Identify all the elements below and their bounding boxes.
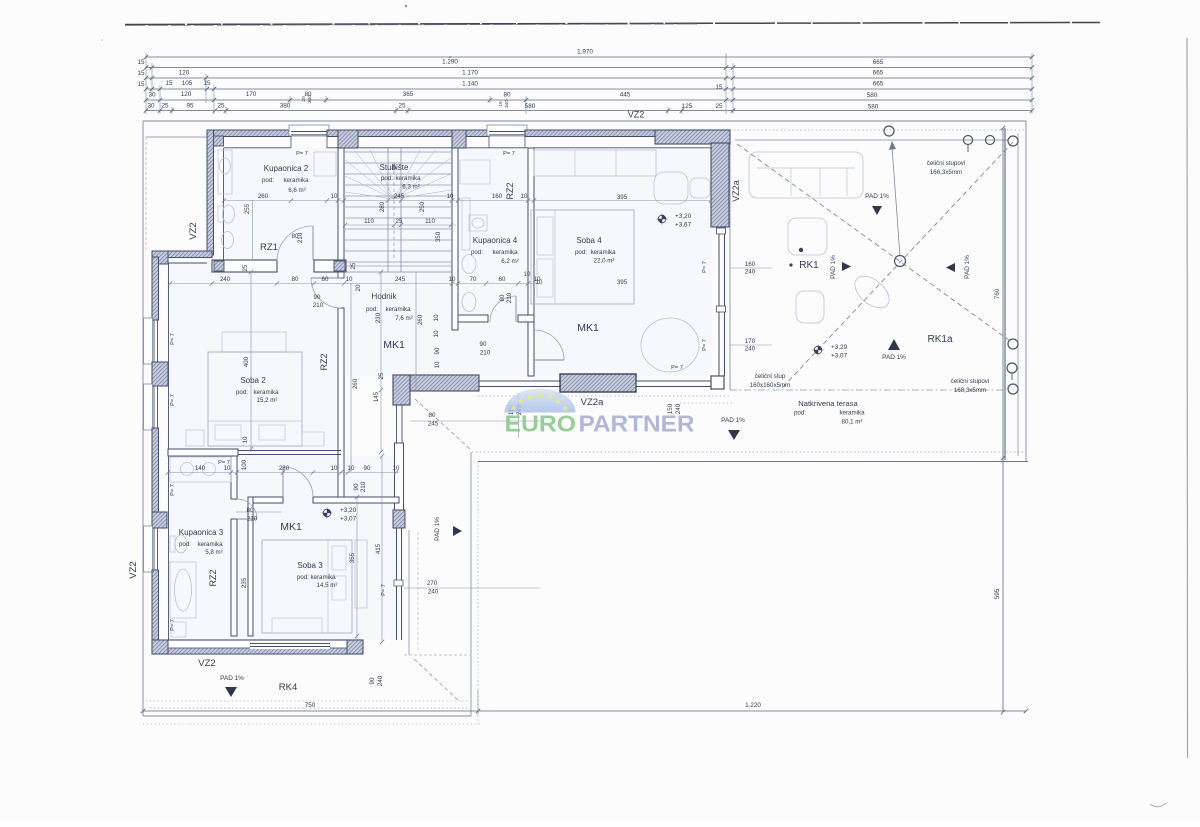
svg-text:60: 60 [322, 276, 329, 283]
svg-text:15: 15 [137, 59, 145, 66]
svg-text:Soba 2: Soba 2 [240, 376, 266, 385]
svg-text:pod:: pod: [794, 410, 806, 417]
svg-text:6,6 m²: 6,6 m² [288, 187, 306, 194]
svg-text:keramika: keramika [283, 177, 309, 184]
svg-text:105: 105 [182, 80, 193, 87]
svg-text:250: 250 [419, 201, 426, 212]
svg-text:100: 100 [241, 459, 248, 470]
svg-text:RZ2: RZ2 [505, 182, 515, 199]
svg-text:20: 20 [355, 284, 362, 291]
svg-text:Hodnik: Hodnik [372, 292, 398, 301]
svg-text:166,3x5mm: 166,3x5mm [930, 169, 962, 176]
svg-text:RK1a: RK1a [927, 334, 952, 345]
svg-text:6,2 m²: 6,2 m² [501, 258, 519, 265]
svg-text:90: 90 [364, 465, 371, 472]
svg-text:125: 125 [682, 103, 693, 110]
svg-text:+3,07: +3,07 [831, 353, 848, 360]
svg-text:10: 10 [348, 465, 355, 472]
svg-text:80: 80 [499, 294, 506, 301]
svg-text:95: 95 [186, 103, 194, 110]
svg-text:230: 230 [279, 465, 290, 472]
svg-text:pod:: pod: [236, 389, 248, 396]
svg-text:240: 240 [428, 589, 439, 596]
svg-text:25: 25 [378, 372, 385, 379]
svg-text:čelični stupovi: čelični stupovi [951, 378, 990, 385]
svg-text:140: 140 [195, 465, 206, 472]
svg-text:80: 80 [503, 92, 511, 99]
svg-text:25: 25 [398, 103, 406, 110]
svg-text:čelični stupovi: čelični stupovi [927, 160, 966, 167]
svg-text:Kupaonica 3: Kupaonica 3 [179, 528, 224, 537]
svg-text:665: 665 [873, 59, 884, 66]
svg-text:25: 25 [217, 103, 225, 110]
svg-text:355: 355 [349, 552, 356, 563]
svg-text:VZ2: VZ2 [198, 658, 215, 669]
svg-text:365: 365 [403, 91, 414, 98]
svg-text:+3,20: +3,20 [340, 507, 357, 514]
svg-text:110: 110 [364, 218, 374, 225]
svg-text:pod:: pod: [381, 175, 393, 182]
svg-text:keramika: keramika [253, 389, 279, 396]
svg-text:VZ2a: VZ2a [581, 397, 604, 408]
svg-text:90: 90 [434, 347, 441, 354]
svg-text:22,0 m²: 22,0 m² [594, 258, 615, 265]
svg-text:30: 30 [147, 103, 155, 110]
svg-text:10: 10 [536, 279, 543, 286]
svg-text:P= 7: P= 7 [702, 261, 708, 273]
svg-text:pod:: pod: [366, 306, 378, 313]
svg-text:235: 235 [241, 577, 248, 588]
svg-text:245: 245 [428, 421, 439, 428]
svg-text:25: 25 [396, 218, 403, 225]
svg-text:160: 160 [745, 261, 756, 268]
svg-text:80: 80 [247, 507, 254, 514]
svg-text:120: 120 [179, 70, 190, 77]
svg-text:pod:: pod: [297, 574, 309, 581]
svg-text:10: 10 [331, 193, 338, 200]
svg-text:15: 15 [137, 81, 145, 88]
svg-text:10: 10 [331, 465, 338, 472]
svg-text:PARTNER: PARTNER [579, 411, 695, 437]
svg-text:PAD 1%: PAD 1% [882, 354, 906, 361]
svg-text:P= 7: P= 7 [503, 151, 515, 157]
svg-text:P= 7: P= 7 [170, 619, 176, 631]
svg-text:280: 280 [379, 201, 386, 212]
svg-text:PAD 1%: PAD 1% [721, 417, 745, 424]
svg-text:+3,20: +3,20 [675, 213, 692, 220]
svg-text:90: 90 [353, 483, 360, 490]
svg-text:VZ2a: VZ2a [731, 180, 741, 202]
svg-text:P= 7: P= 7 [218, 460, 230, 466]
svg-text:160x160x5mm: 160x160x5mm [750, 382, 791, 389]
svg-text:P= 7: P= 7 [381, 584, 387, 596]
svg-text:Kupaonica 4: Kupaonica 4 [473, 236, 518, 245]
svg-text:70: 70 [470, 276, 477, 283]
svg-text:MK1: MK1 [577, 322, 599, 334]
svg-text:415: 415 [375, 543, 382, 554]
svg-text:665: 665 [873, 81, 884, 88]
svg-text:Kupaonica 2: Kupaonica 2 [264, 164, 309, 173]
svg-text:10: 10 [242, 436, 249, 443]
svg-text:VZ2: VZ2 [128, 561, 139, 578]
svg-text:RK1: RK1 [799, 260, 819, 271]
svg-text:7,6 m²: 7,6 m² [395, 315, 413, 322]
svg-text:PAD 1%: PAD 1% [964, 255, 971, 279]
svg-text:260: 260 [352, 378, 359, 389]
svg-text:keramika: keramika [590, 249, 616, 256]
svg-text:keramika: keramika [492, 249, 518, 256]
svg-text:RZ1: RZ1 [260, 242, 278, 253]
svg-text:240: 240 [745, 346, 756, 353]
svg-text:5,8 m²: 5,8 m² [205, 549, 223, 556]
svg-text:240: 240 [220, 276, 231, 283]
svg-text:P= 7: P= 7 [170, 394, 176, 406]
svg-text:145: 145 [373, 391, 380, 402]
svg-text:760: 760 [994, 288, 1001, 299]
svg-text:keramika: keramika [839, 410, 865, 417]
svg-text:Stubište: Stubište [380, 163, 409, 172]
svg-text:15: 15 [715, 84, 723, 91]
svg-text:15: 15 [203, 80, 211, 87]
svg-text:15: 15 [498, 101, 504, 107]
svg-text:P= 7: P= 7 [170, 484, 176, 496]
svg-text:pod:: pod: [262, 177, 274, 184]
svg-text:380: 380 [280, 103, 291, 110]
svg-text:170: 170 [745, 338, 756, 345]
svg-text:RK4: RK4 [279, 682, 297, 693]
svg-text:255: 255 [244, 203, 251, 214]
svg-text:580: 580 [867, 92, 878, 99]
svg-text:170: 170 [246, 91, 257, 98]
svg-text:210: 210 [360, 481, 367, 492]
svg-text:395: 395 [617, 279, 628, 286]
svg-text:1.170: 1.170 [462, 70, 478, 77]
svg-text:445: 445 [620, 92, 631, 99]
svg-text:EURO: EURO [505, 411, 577, 437]
svg-text:15: 15 [165, 80, 173, 87]
svg-text:RZ2: RZ2 [319, 353, 329, 370]
svg-text:580: 580 [868, 104, 879, 111]
svg-text:665: 665 [873, 70, 884, 77]
svg-text:30: 30 [148, 92, 156, 99]
svg-text:PAD 1%: PAD 1% [220, 675, 244, 682]
svg-text:25: 25 [242, 264, 249, 271]
svg-text:10: 10 [433, 314, 440, 321]
svg-text:1.140: 1.140 [462, 81, 478, 88]
svg-text:PAD 1%: PAD 1% [434, 517, 441, 541]
svg-text:395: 395 [617, 194, 628, 201]
svg-text:20: 20 [301, 96, 307, 102]
svg-text:10: 10 [224, 465, 231, 472]
svg-text:pod:: pod: [471, 249, 483, 256]
svg-text:240: 240 [377, 675, 384, 686]
svg-text:25: 25 [350, 262, 357, 269]
svg-text:60: 60 [499, 276, 506, 283]
svg-text:350: 350 [435, 231, 442, 242]
svg-text:keramika: keramika [395, 175, 421, 182]
svg-text:110: 110 [425, 218, 435, 225]
svg-text:P= 7: P= 7 [170, 333, 176, 345]
svg-text:595: 595 [994, 588, 1001, 599]
svg-text:580: 580 [525, 103, 536, 110]
svg-text:240: 240 [745, 269, 756, 276]
svg-text:10: 10 [447, 193, 454, 200]
svg-text:90: 90 [369, 677, 376, 684]
svg-text:1.970: 1.970 [577, 49, 593, 56]
svg-text:80,1 m²: 80,1 m² [842, 419, 863, 426]
svg-text:260: 260 [417, 314, 424, 325]
svg-text:keramika: keramika [310, 574, 336, 581]
svg-text:168,3x5mm: 168,3x5mm [954, 387, 986, 394]
svg-text:210: 210 [297, 232, 304, 243]
svg-text:VZ2: VZ2 [188, 222, 199, 239]
svg-text:10: 10 [393, 465, 400, 472]
svg-text:keramika: keramika [385, 306, 411, 313]
svg-text:P= 7: P= 7 [702, 339, 708, 351]
svg-text:15,2 m²: 15,2 m² [257, 397, 278, 404]
svg-text:MK1: MK1 [280, 521, 302, 533]
svg-text:340: 340 [307, 95, 313, 103]
svg-text:+3,29: +3,29 [831, 344, 848, 351]
svg-text:210: 210 [506, 292, 513, 303]
svg-text:Natkrivena terasa: Natkrivena terasa [798, 399, 858, 408]
svg-text:P= 7: P= 7 [296, 151, 308, 157]
svg-text:10: 10 [434, 361, 441, 368]
svg-text:MK1: MK1 [383, 339, 405, 351]
svg-text:Soba 3: Soba 3 [297, 561, 323, 570]
svg-text:400: 400 [243, 356, 250, 367]
svg-text:90: 90 [314, 294, 321, 301]
svg-text:keramika: keramika [197, 541, 223, 548]
svg-text:10: 10 [521, 193, 528, 200]
svg-text:1.220: 1.220 [745, 702, 761, 709]
svg-text:pod:: pod: [575, 249, 587, 256]
svg-text:90: 90 [480, 341, 487, 348]
svg-text:PAD 1%: PAD 1% [865, 193, 889, 200]
svg-text:+3,67: +3,67 [675, 222, 692, 229]
svg-text:pod:: pod: [179, 541, 191, 548]
svg-text:P= 7: P= 7 [671, 365, 683, 371]
svg-text:Soba 4: Soba 4 [576, 236, 602, 245]
svg-text:15: 15 [137, 70, 145, 77]
svg-text:340: 340 [504, 100, 510, 108]
svg-text:10: 10 [433, 330, 440, 337]
svg-text:120: 120 [181, 91, 192, 98]
svg-text:260: 260 [258, 193, 269, 200]
svg-text:VZ2: VZ2 [628, 110, 645, 120]
svg-text:14,5 m²: 14,5 m² [317, 582, 338, 589]
svg-text:25: 25 [715, 103, 723, 110]
svg-text:10: 10 [524, 271, 531, 278]
svg-text:80: 80 [292, 276, 299, 283]
svg-text:230: 230 [375, 312, 382, 323]
svg-text:245: 245 [395, 276, 406, 283]
svg-text:10: 10 [346, 276, 353, 283]
svg-text:1.290: 1.290 [442, 59, 458, 66]
svg-text:80: 80 [429, 412, 436, 419]
svg-text:210: 210 [247, 516, 258, 523]
svg-text:25: 25 [161, 103, 169, 110]
svg-text:6,3 m²: 6,3 m² [402, 184, 420, 191]
svg-text:270: 270 [427, 580, 438, 587]
svg-text:PAD 1%: PAD 1% [830, 255, 837, 279]
svg-text:čelični stup: čelični stup [755, 373, 786, 380]
svg-text:210: 210 [480, 350, 491, 357]
svg-text:160: 160 [492, 193, 503, 200]
svg-text:+3,07: +3,07 [340, 516, 357, 523]
svg-text:RZ2: RZ2 [208, 569, 218, 586]
svg-text:245: 245 [394, 193, 405, 200]
svg-text:10: 10 [449, 276, 456, 283]
svg-text:750: 750 [305, 702, 316, 709]
svg-text:210: 210 [313, 302, 324, 309]
